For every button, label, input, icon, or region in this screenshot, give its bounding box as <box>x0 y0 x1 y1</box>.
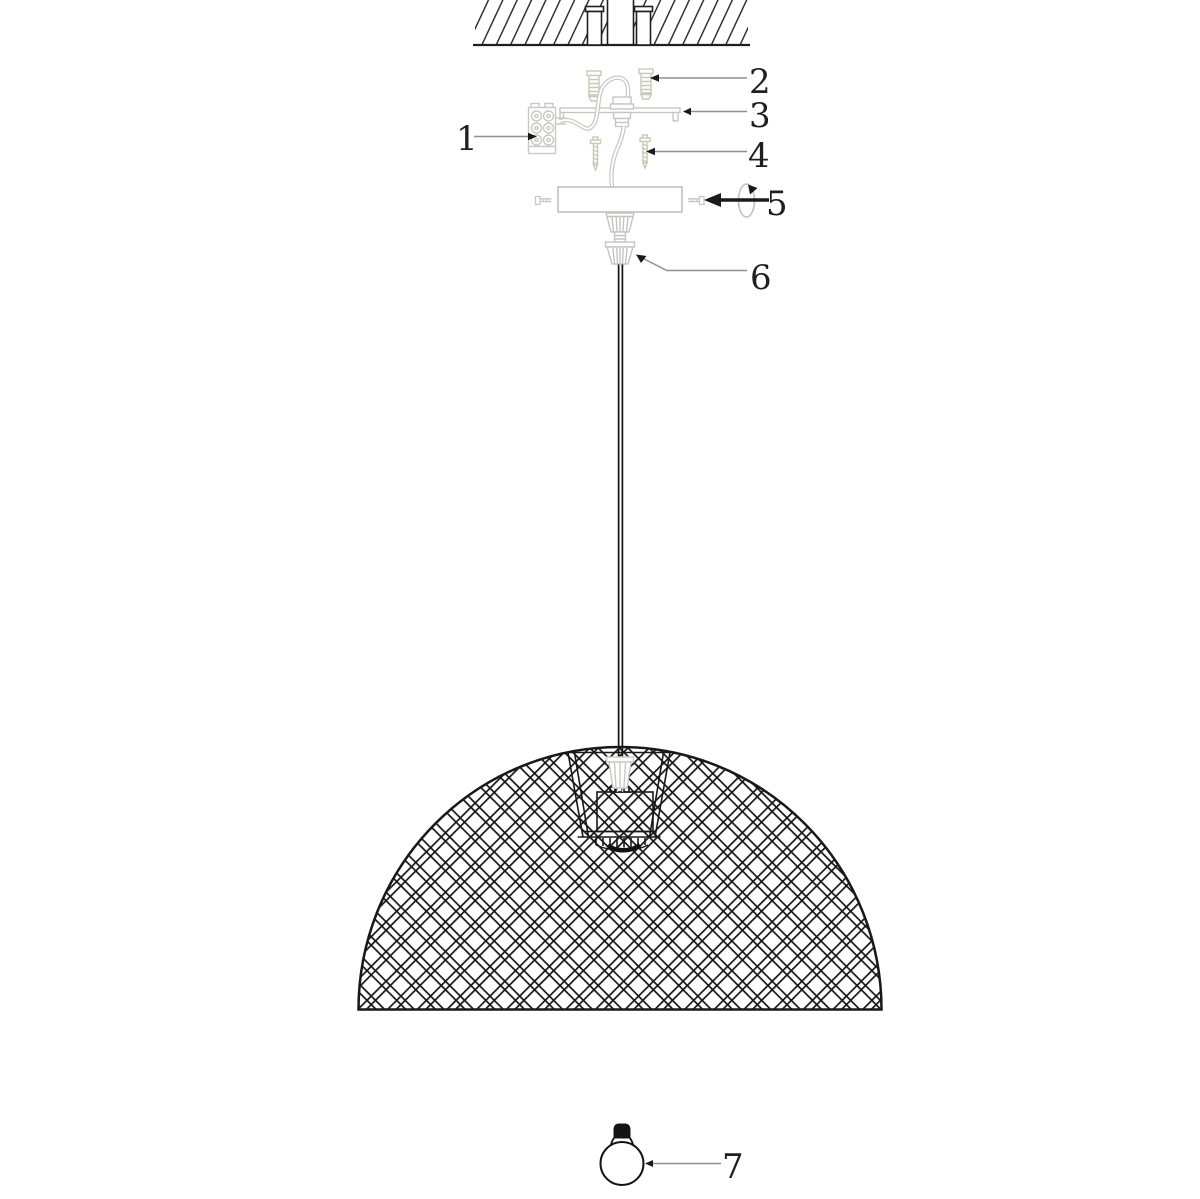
part-label-1: 1 <box>456 119 478 159</box>
diagram-canvas: 1 2 3 4 5 6 7 <box>0 0 1200 1199</box>
power-wire-lower <box>611 126 624 188</box>
cord-grip-lower <box>606 242 635 264</box>
cord-grip-upper <box>606 213 634 242</box>
canopy <box>536 187 705 212</box>
ceiling-section <box>473 0 750 45</box>
assembly-diagram: 1 2 3 4 5 6 7 <box>0 0 1200 1199</box>
mesh-dome-shade <box>359 747 882 1010</box>
part-label-6: 6 <box>750 258 772 298</box>
canopy-screw-left-icon <box>536 197 552 205</box>
install-arrow-icon <box>704 193 769 207</box>
screw-left-icon <box>591 137 601 170</box>
embedded-anchor-left <box>586 7 604 46</box>
part-label-7: 7 <box>722 1147 744 1187</box>
pendant-cable <box>619 265 623 761</box>
wall-anchor-right-icon <box>639 69 653 99</box>
arrowhead-7-icon <box>645 1160 653 1167</box>
leader-6 <box>641 258 747 271</box>
part-label-5: 5 <box>766 184 788 224</box>
part-label-4: 4 <box>748 136 770 176</box>
part-label-3: 3 <box>749 96 771 136</box>
arrowhead-3-icon <box>683 108 691 115</box>
ceiling-hole <box>608 0 634 45</box>
light-bulb-icon <box>601 1124 644 1185</box>
canopy-screw-right-icon <box>688 197 704 205</box>
embedded-anchor-right <box>635 7 653 46</box>
